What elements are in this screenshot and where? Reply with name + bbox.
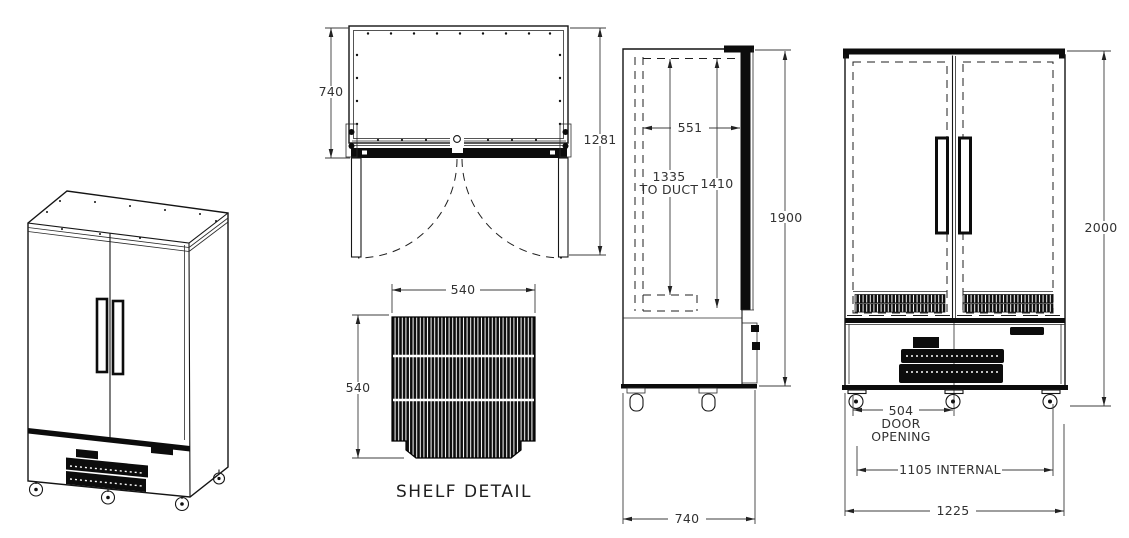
iso-left-handle <box>97 299 107 372</box>
plan-depth-dimension: 740 <box>317 28 350 158</box>
front-overall-width-dimension: 1225 <box>845 393 1064 518</box>
front-overall-height-dimension: 2000 <box>1067 51 1123 406</box>
side-overall-depth-label: 740 <box>675 511 700 526</box>
side-internal-height-dimension: 1410 <box>699 59 735 308</box>
plan-left-door-open <box>352 158 362 257</box>
side-casters <box>627 388 717 411</box>
front-view: 2000 504 DOOR OPENING 1105 INTERNAL 1225 <box>842 49 1123 519</box>
plan-left-door-swing-arc <box>358 159 457 258</box>
isometric-view <box>28 191 228 511</box>
side-cabinet-height-dimension: 1900 <box>755 50 806 386</box>
front-right-door-handle <box>960 138 971 233</box>
shelf-width-dimension: 540 <box>392 282 535 313</box>
shelf-depth-label: 540 <box>346 380 371 395</box>
plan-view: 740 1281 <box>317 26 618 258</box>
side-internal-height-label: 1410 <box>700 176 733 191</box>
front-top-cap <box>843 49 1065 55</box>
shelf-width-label: 540 <box>451 282 476 297</box>
front-left-door-handle <box>937 138 948 233</box>
front-overall-width-label: 1225 <box>936 503 969 518</box>
side-door-slab <box>741 52 751 310</box>
front-condenser-unit <box>899 337 1004 383</box>
front-body-outline <box>845 55 1065 385</box>
front-rating-badge <box>1010 327 1044 335</box>
side-duct-outline <box>643 295 697 311</box>
plan-right-door-open <box>559 158 569 257</box>
front-overall-height-label: 2000 <box>1084 220 1117 235</box>
side-cabinet-height-label: 1900 <box>769 210 802 225</box>
shelf-wire-panel <box>392 317 535 458</box>
front-internal-width-label: 1105 INTERNAL <box>899 462 1001 477</box>
side-internal-depth-dimension: 551 <box>643 120 740 135</box>
shelf-detail-view: 540 540 SHELF DETAIL <box>342 282 535 502</box>
front-right-door-inner-dashed <box>963 62 1053 313</box>
plan-open-depth-label: 1281 <box>583 132 616 147</box>
side-internal-depth-label: 551 <box>678 120 703 135</box>
side-duct-height-dimension: 1335 TO DUCT <box>639 59 699 295</box>
side-view: 551 1335 TO DUCT 1410 1900 <box>621 46 806 527</box>
side-door-top-cap <box>724 46 754 53</box>
drawing-canvas: 740 1281 540 540 SHELF D <box>0 0 1129 538</box>
front-shelf-grille <box>855 295 1053 313</box>
side-duct-height-sublabel: TO DUCT <box>639 182 699 197</box>
iso-right-handle <box>113 301 123 374</box>
plan-cabinet-body <box>349 26 568 143</box>
plan-open-depth-dimension: 1281 <box>569 28 618 255</box>
front-door-opening-word2: OPENING <box>871 429 930 444</box>
shelf-detail-caption: SHELF DETAIL <box>396 482 532 502</box>
plan-depth-label: 740 <box>319 84 344 99</box>
side-overall-depth-dimension: 740 <box>623 390 755 526</box>
side-body-outline <box>623 49 745 386</box>
plan-right-door-swing-arc <box>462 159 562 258</box>
front-left-door-inner-dashed <box>853 62 947 313</box>
technical-drawing: 740 1281 540 540 SHELF D <box>0 0 1129 538</box>
front-door-opening-dimension: 504 DOOR OPENING <box>853 396 953 444</box>
